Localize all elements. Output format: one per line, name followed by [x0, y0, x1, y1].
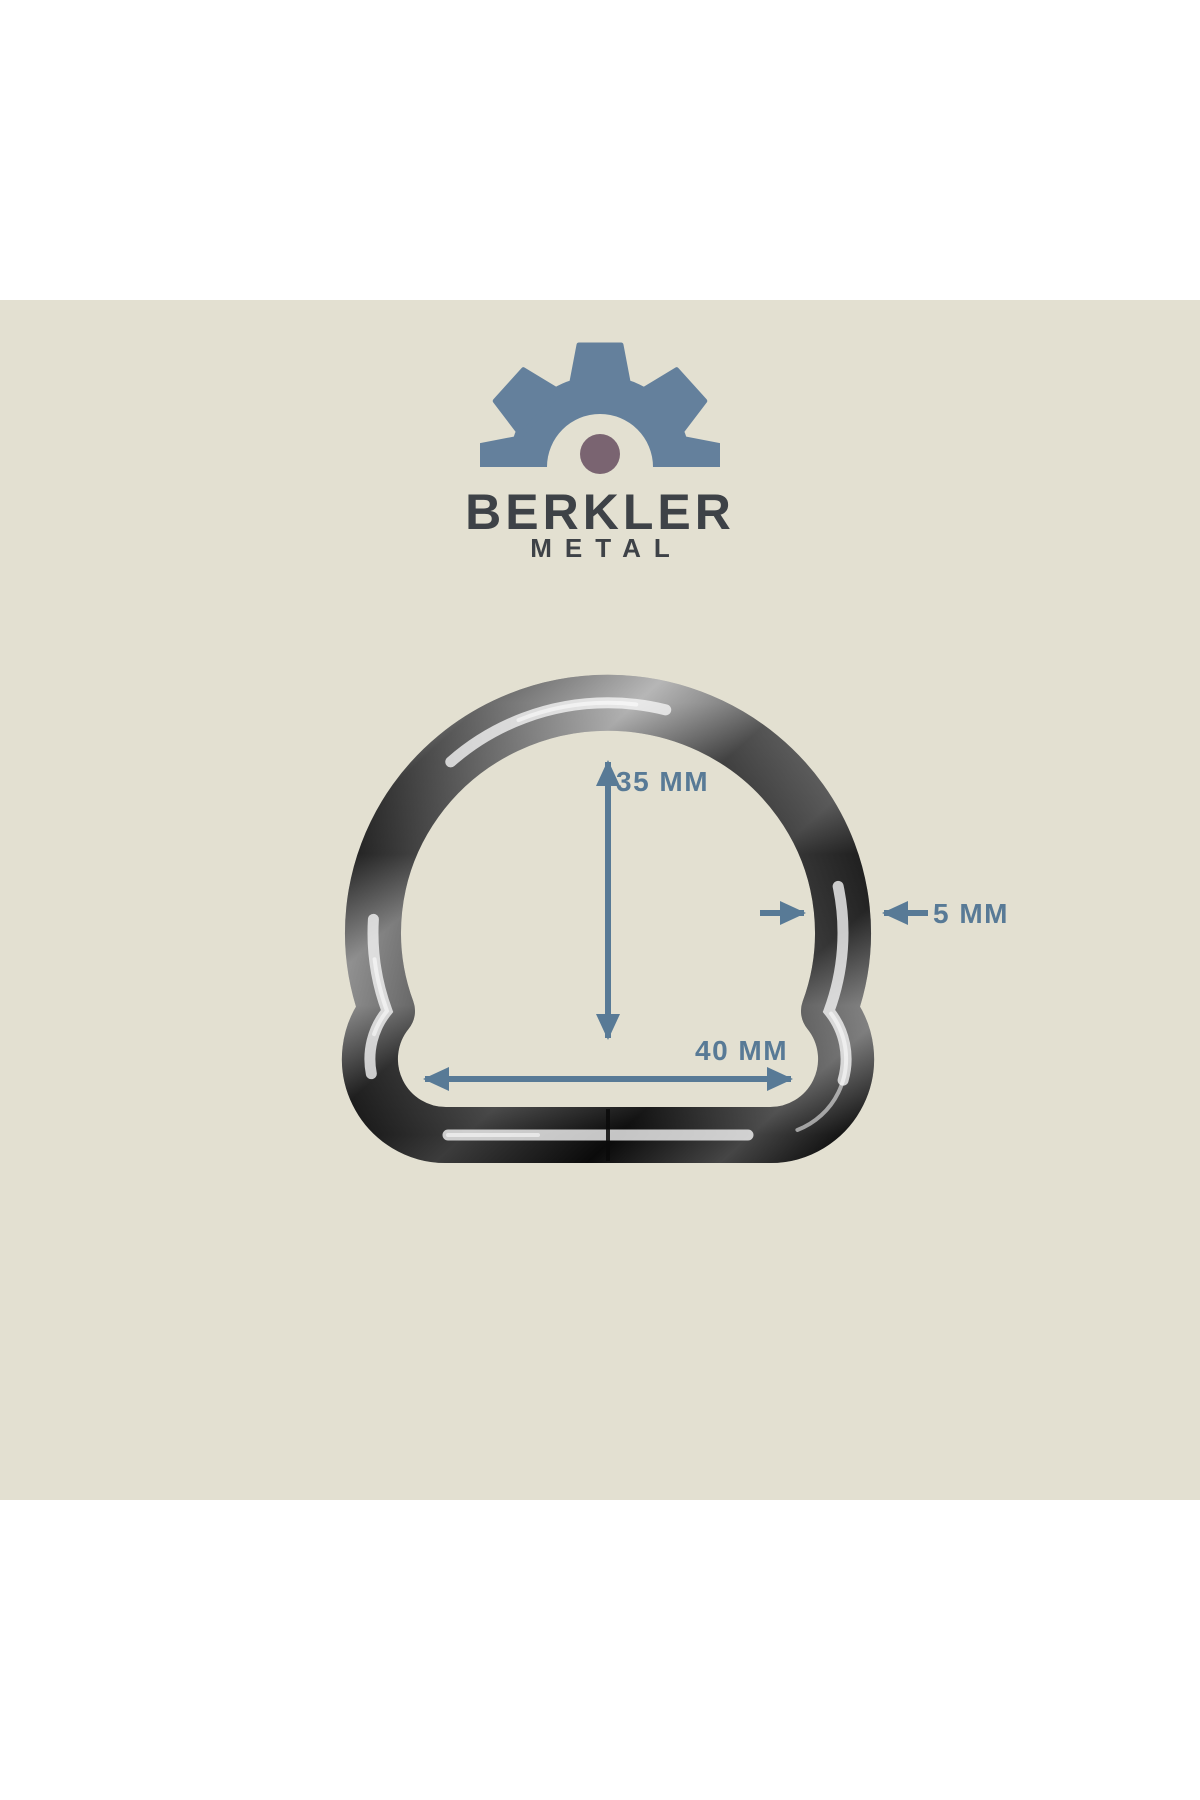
d-ring-sheen [370, 703, 846, 1135]
thickness-dimension-label: 5 MM [933, 900, 1009, 928]
gear-tooth [571, 345, 629, 387]
product-card: BERKLER METAL [0, 0, 1200, 1800]
gear-icon [480, 330, 720, 475]
height-dimension-label: 35 MM [616, 768, 709, 796]
brand-tagline: METAL [0, 533, 1200, 564]
gear-tooth [480, 438, 520, 475]
d-ring-image [338, 668, 878, 1168]
gear-hub-dot [580, 434, 620, 474]
width-dimension-label: 40 MM [695, 1037, 788, 1065]
gear-tooth [680, 438, 720, 475]
